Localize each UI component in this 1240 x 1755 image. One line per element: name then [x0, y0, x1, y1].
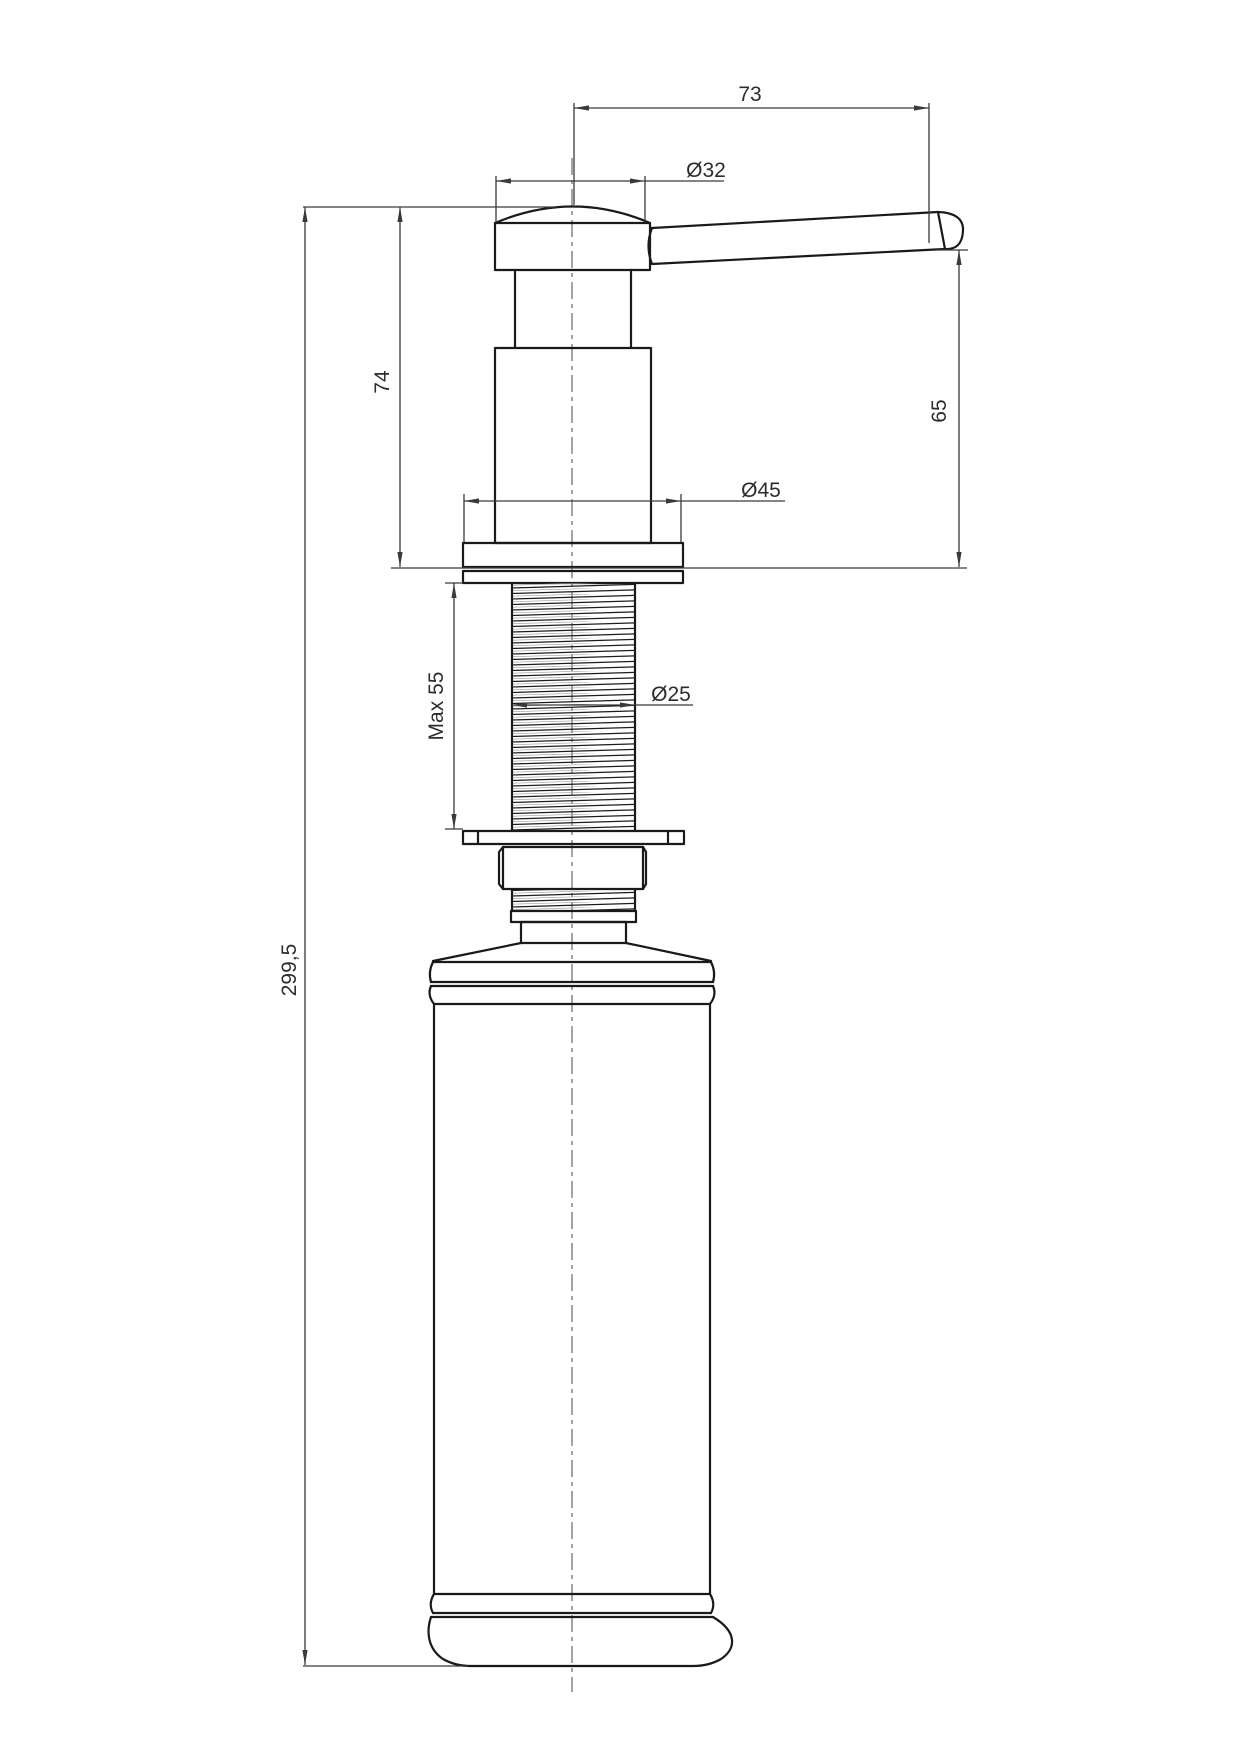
- arrow-73-right: [914, 105, 929, 110]
- arrow-32-right: [630, 178, 645, 183]
- bottle: [429, 943, 733, 1666]
- lower-collar: [511, 890, 636, 943]
- shoulder-cone-right: [626, 943, 711, 961]
- arrow-45-right: [666, 498, 681, 503]
- arrow-65-bottom: [956, 552, 961, 567]
- shank-thread-texture: [512, 583, 635, 830]
- flange-disk: [463, 543, 683, 567]
- washer-outline: [463, 831, 684, 844]
- dim-299-overall-height: 299,5: [278, 207, 468, 1666]
- arrow-299-top: [302, 207, 307, 222]
- dim-74-pump-height: 74: [371, 207, 403, 567]
- dim-label-reach: 73: [738, 83, 761, 106]
- lever-bottom-edge: [652, 249, 945, 264]
- pump-head: [495, 207, 651, 544]
- stub-thread-texture: [512, 890, 635, 911]
- dim-73-reach: 73: [574, 83, 929, 243]
- soap-dispenser-technical-drawing: 73 Ø32 65 74: [0, 0, 1240, 1755]
- dim-label-max-thickness: Max 55: [425, 672, 448, 741]
- dim-label-flange-dia: Ø45: [741, 479, 781, 502]
- arrow-55-top: [451, 583, 456, 598]
- base-ring-right: [710, 1594, 713, 1613]
- arrow-74-top: [397, 207, 402, 222]
- dim-label-thread-dia: Ø25: [651, 683, 691, 706]
- dim-label-head-dia: Ø32: [686, 159, 726, 182]
- arrow-32-left: [496, 178, 511, 183]
- mounting-flange: [463, 543, 683, 583]
- threaded-shank: [512, 583, 635, 830]
- dim-label-overall-height: 299,5: [278, 944, 301, 997]
- collar-ring: [521, 922, 626, 943]
- spout-lever: [649, 212, 964, 264]
- arrow-299-bottom: [302, 1650, 307, 1665]
- shoulder-cone-left: [433, 943, 521, 961]
- dim-65-spout-height: 65: [928, 250, 968, 567]
- arrow-73-left: [574, 105, 589, 110]
- arrow-74-bottom: [397, 552, 402, 567]
- drawing-sheet: 73 Ø32 65 74: [0, 0, 1240, 1755]
- dim-32-head-diameter: Ø32: [496, 159, 726, 222]
- flange-base-plate: [463, 571, 683, 583]
- shoulder-band2-left: [430, 986, 434, 1004]
- arrow-65-top: [956, 250, 961, 265]
- base-ring-left: [431, 1594, 434, 1613]
- shoulder-band1-left: [430, 962, 433, 982]
- lever-tip-joint: [938, 212, 945, 249]
- dim-label-pump-height: 74: [371, 370, 394, 394]
- shoulder-band2-right: [710, 986, 714, 1004]
- dim-max55-thickness: Max 55: [425, 583, 463, 829]
- base-cap-outline: [429, 1617, 733, 1666]
- dim-label-spout-height: 65: [928, 399, 951, 422]
- washer-plate: [463, 831, 684, 844]
- collar-plate: [511, 911, 636, 922]
- arrow-55-bottom: [451, 814, 456, 829]
- lever-top-edge: [652, 212, 938, 228]
- dim-45-flange-diameter: Ø45: [464, 479, 785, 542]
- shoulder-band1-right: [711, 962, 714, 982]
- dispenser-outline: [429, 207, 963, 1667]
- arrow-45-left: [464, 498, 479, 503]
- pump-body: [495, 348, 651, 543]
